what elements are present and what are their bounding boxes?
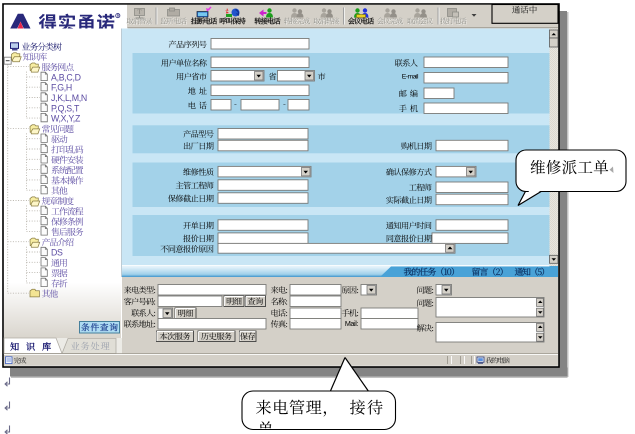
svg-text:A,B,C,D: A,B,C,D (51, 72, 81, 82)
svg-text:F,G,H: F,G,H (51, 83, 72, 93)
svg-text:J,K,L,M,N: J,K,L,M,N (51, 93, 87, 103)
svg-text:Mail:: Mail: (345, 319, 359, 328)
svg-text:E-mail: E-mail (402, 74, 419, 81)
svg-text:DS: DS (51, 248, 63, 258)
svg-text:P,Q,S,T: P,Q,S,T (51, 103, 80, 113)
svg-text:W,X,Y,Z: W,X,Y,Z (51, 114, 81, 124)
